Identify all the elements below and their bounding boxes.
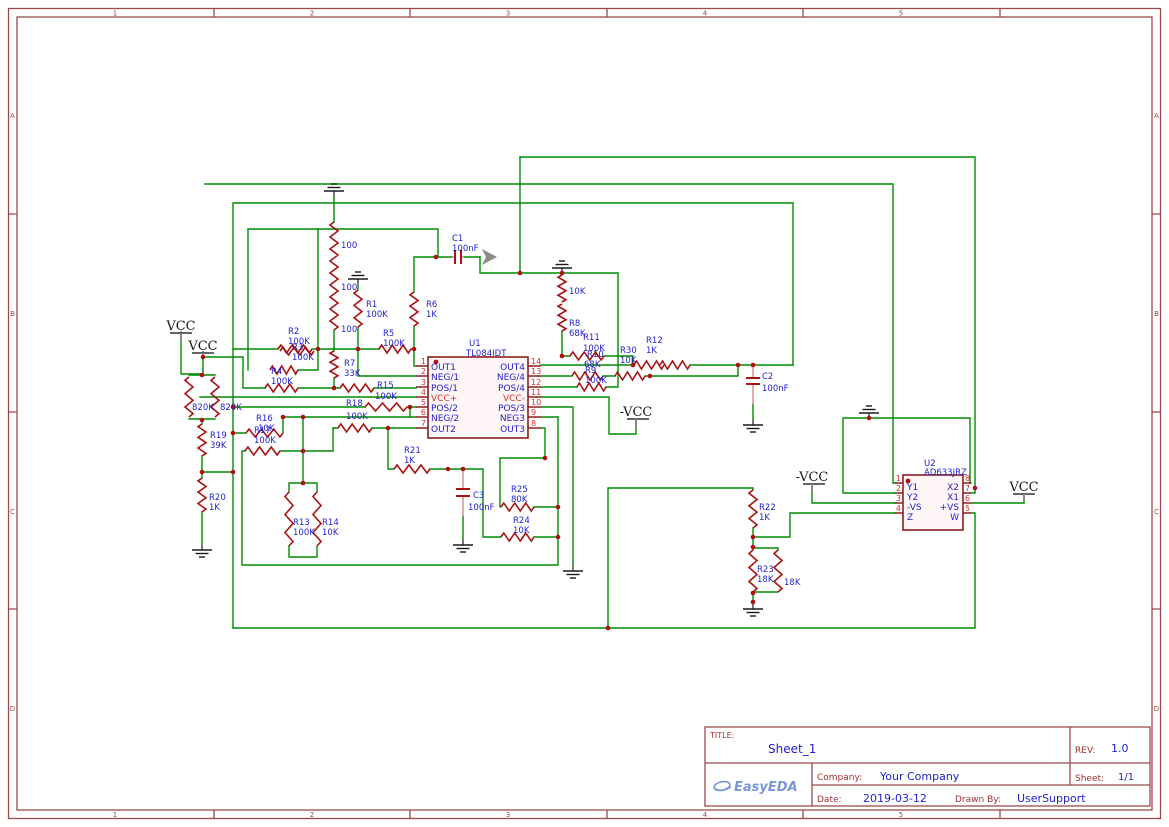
u1-pin-number: 10 [531,398,541,407]
vcc-flag-1: VCC [165,319,195,341]
r25-value-label: 80K [511,495,528,505]
u2-pin-name: +VS [940,503,960,513]
neg-vcc-flag-2: -VCC [796,470,829,492]
r100-value-label: 100 [341,325,357,335]
r10-ref-label: R10 [587,350,604,360]
r1-value-label: 100K [366,310,388,320]
resistor-R19-body [198,424,206,456]
sheet-value: 1/1 [1118,772,1134,783]
u2-pin-name: X2 [947,483,959,493]
drawn-by-label: Drawn By: [955,795,1001,805]
u1-pin-name: POS/1 [431,384,458,394]
u1-pin-number: 13 [531,367,541,376]
ground-icon [324,184,344,196]
neg-vcc-net-label: -VCC [796,470,829,485]
vcc-net-label: VCC [187,339,217,354]
resistor-R23-body [749,550,757,592]
r19-value-label: 39K [210,441,227,451]
r23b-value-label: 18K [784,578,801,588]
u2-pin-name: W [950,513,959,523]
u2-pin-name: Y1 [906,483,918,493]
rev-label: REV: [1075,746,1095,756]
u1-pin-number: 2 [421,367,426,376]
col-label: 5 [899,10,903,18]
resistor-body [615,372,645,380]
vcc-net-label: VCC [1008,480,1038,495]
resistor-R22-body [749,490,757,528]
ic-u2[interactable]: U2 AD633JRZ 1 2 3 4 Y1 Y2 -VS Z 8 7 6 5 … [895,459,971,530]
u1-pin-name: OUT4 [500,363,525,373]
r3-value-label: 100K [292,353,314,363]
row-label: C [1154,508,1159,516]
row-label: D [10,705,15,713]
r21-value-label: 1K [404,456,415,466]
resistor-18K-body [774,550,782,592]
r23-ref-label: R23 [757,565,774,575]
row-label: A [10,112,15,120]
r22-value-label: 1K [759,513,770,523]
ground-icon [453,540,473,552]
resistor-100-body [330,222,338,258]
u2-pin-number: 7 [965,484,970,493]
r11-ref-label: R11 [583,333,600,343]
resistor-R12-body [660,361,690,369]
row-label: B [10,310,15,318]
u1-pin-number: 1 [421,357,426,366]
u1-pin-name: OUT3 [500,425,525,435]
col-label: 3 [506,10,510,18]
r6-ref-label: R6 [426,300,437,310]
resistor-R15-body [340,384,374,392]
resistor-10K-body [558,275,566,302]
u2-pin-number: 2 [896,484,901,493]
col-label: 4 [703,811,708,819]
r13-ref-label: R13 [293,518,310,528]
u1-pin-number: 3 [421,378,426,387]
r10k-top-value-label: 10K [569,287,586,297]
u1-pin-number: 14 [531,357,541,366]
ground-icon [743,420,763,432]
company-label: Company: [817,773,862,783]
resistor-body [338,424,372,432]
u1-pin-number: 11 [531,388,541,397]
neg-vcc-flag-1: -VCC [620,405,653,427]
col-label: 1 [113,10,117,18]
c3-ref-label: C3 [473,491,484,501]
row-label: B [1154,310,1159,318]
logo-text: EasyEDA [734,780,798,795]
resistor-R1-body [354,290,362,327]
r18-ref-label: R18 [346,399,363,409]
rev-value: 1.0 [1111,742,1129,755]
capacitor-C2-plates [746,378,760,384]
title-block: TITLE: Sheet_1 REV: 1.0 EasyEDA Company:… [705,727,1150,806]
u1-pin-number: 6 [421,408,426,417]
resistor-R30-body [634,361,664,369]
vcc-net-label: VCC [165,319,195,334]
r20-value-label: 1K [209,503,220,513]
resistor-R17-body [245,447,280,455]
u2-pin-number: 6 [965,494,970,503]
r19-ref-label: R19 [210,431,227,441]
c2-ref-label: C2 [762,372,773,382]
u1-pin-name: NEG/1 [431,373,459,383]
border-column-labels-bottom: 1 2 3 4 5 [113,811,903,819]
r2-ref-label: R2 [288,327,299,337]
u1-pin-name-vccminus: VCC- [503,394,525,404]
u1-pin-number: 9 [531,408,536,417]
u1-pin-name-vccplus: VCC+ [431,394,457,404]
r18-value-label: 100K [346,412,368,422]
r21-ref-label: R21 [404,446,421,456]
u1-pin-number: 12 [531,378,541,387]
r16-ref-label: R16 [256,414,273,424]
r22-ref-label: R22 [759,503,776,513]
schematic-canvas[interactable]: 1 2 3 4 5 1 2 3 4 5 A B C D A B C D [0,0,1169,827]
r20-ref-label: R20 [209,493,226,503]
r12-value-label: 1K [646,346,657,356]
r100-value-label: 100 [341,241,357,251]
u1-pin-name: POS/2 [431,404,458,414]
r23-value-label: 18K [757,575,774,585]
r30-ref-label: R30 [620,346,637,356]
row-label: A [1154,112,1159,120]
sheet-border [9,9,1161,819]
resistor-R7-body [330,351,338,378]
col-label: 3 [506,811,510,819]
u1-pin-number: 7 [421,419,426,428]
r820-value-label: 820K [192,403,214,413]
resistor-100-body [330,294,338,330]
col-label: 5 [899,811,903,819]
r9-ref-label: R9 [585,366,596,376]
r100-value-label: 100 [341,283,357,293]
u1-part: TL084IDT [465,349,507,359]
r4-ref-label: R4 [271,367,282,377]
r6-value-label: 1K [426,310,437,320]
u2-pin-number: 8 [965,474,970,483]
schematic-page: 1 2 3 4 5 1 2 3 4 5 A B C D A B C D [0,0,1169,827]
u1-pin-name: POS/3 [498,404,525,414]
c1-ref-label: C1 [452,234,463,244]
sheet-title[interactable]: Sheet_1 [768,742,816,756]
r17-value-label: 100K [254,436,276,446]
u1-pin-name: OUT2 [431,425,456,435]
r15-value-label: 100K [375,392,397,402]
ground-icon [192,545,212,557]
date-label: Date: [817,795,842,805]
col-label: 1 [113,811,117,819]
resistor-100-body [330,258,338,294]
ground-icon [563,566,583,578]
u1-pin-name: NEG3 [500,414,525,424]
u1-ref: U1 [469,339,481,349]
r24-ref-label: R24 [513,516,530,526]
net-flag-arrow-icon [482,249,497,265]
resistor-R21-body [394,465,430,473]
u2-pin-number: 1 [896,474,901,483]
neg-vcc-net-label: -VCC [620,405,653,420]
u1-pin-name: OUT1 [431,363,456,373]
wires[interactable] [181,157,1024,628]
u1-pin-name: NEG/2 [431,414,459,424]
resistor-R20-body [198,478,206,512]
r15-ref-label: R15 [377,381,394,391]
u2-part: AD633JRZ [924,468,967,478]
r17-ref-label: R17 [254,426,271,436]
easyeda-logo: EasyEDA [713,780,797,795]
resistor-R13-body [285,492,293,546]
r1-ref-label: R1 [366,300,377,310]
date-value: 2019-03-12 [863,792,927,805]
r9-value-label: 100K [585,376,607,386]
r30-value-label: 10K [620,356,637,366]
r4-value-label: 100K [271,377,293,387]
resistor-R18-body [365,403,407,411]
r24-value-label: 10K [513,526,530,536]
resistor-R6-body [410,292,418,326]
drawn-by-value: UserSupport [1017,792,1086,805]
r7-ref-label: R7 [344,359,355,369]
sheet-label: Sheet: [1075,774,1104,784]
r8-ref-label: R8 [569,319,580,329]
c2-value-label: 100nF [762,384,789,394]
c3-value-label: 100nF [468,503,495,513]
vcc-flag-3: VCC [1008,480,1038,500]
vcc-flag-2: VCC [187,339,217,357]
r7-value-label: 33K [344,369,361,379]
r5-value-label: 100K [383,339,405,349]
u2-pin-number: 5 [965,504,970,513]
title-label: TITLE: [709,731,734,740]
c1-value-label: 100nF [452,244,479,254]
company-value: Your Company [879,770,960,783]
capacitor-C3-plates [456,489,470,496]
u1-pin-name: POS/4 [498,384,525,394]
u1-pin-number: 8 [531,419,536,428]
row-label: C [10,508,15,516]
border-column-labels-top: 1 2 3 4 5 [113,10,903,18]
col-label: 2 [310,10,314,18]
resistor-R8-body [558,304,566,331]
r12-ref-label: R12 [646,336,663,346]
u2-pin-name: Z [907,513,913,523]
u2-pin-number: 3 [896,494,901,503]
r13-value-label: 100K [293,528,315,538]
r14-value-label: 10K [322,528,339,538]
r14-ref-label: R14 [322,518,339,528]
u2-pin-number: 4 [896,504,901,513]
u2-pin-name: X1 [947,493,959,503]
r25-ref-label: R25 [511,485,528,495]
r5-ref-label: R5 [383,329,394,339]
r3-ref-label: R3 [292,343,303,353]
u1-pin-number: 4 [421,388,426,397]
row-label: D [1154,705,1159,713]
u2-pin-name: -VS [907,503,922,513]
ic-u1[interactable]: U1 TL084IDT 1 2 3 4 5 6 7 OUT1 NEG/1 POS… [416,339,541,438]
r820-value-label: 820K [220,403,242,413]
col-label: 4 [703,10,708,18]
u2-pin-name: Y2 [906,493,918,503]
col-label: 2 [310,811,314,819]
u1-pin-name: NEG/4 [497,373,525,383]
ground-icon [743,604,763,616]
u1-pin-number: 5 [421,398,426,407]
junction-dots [200,255,978,631]
